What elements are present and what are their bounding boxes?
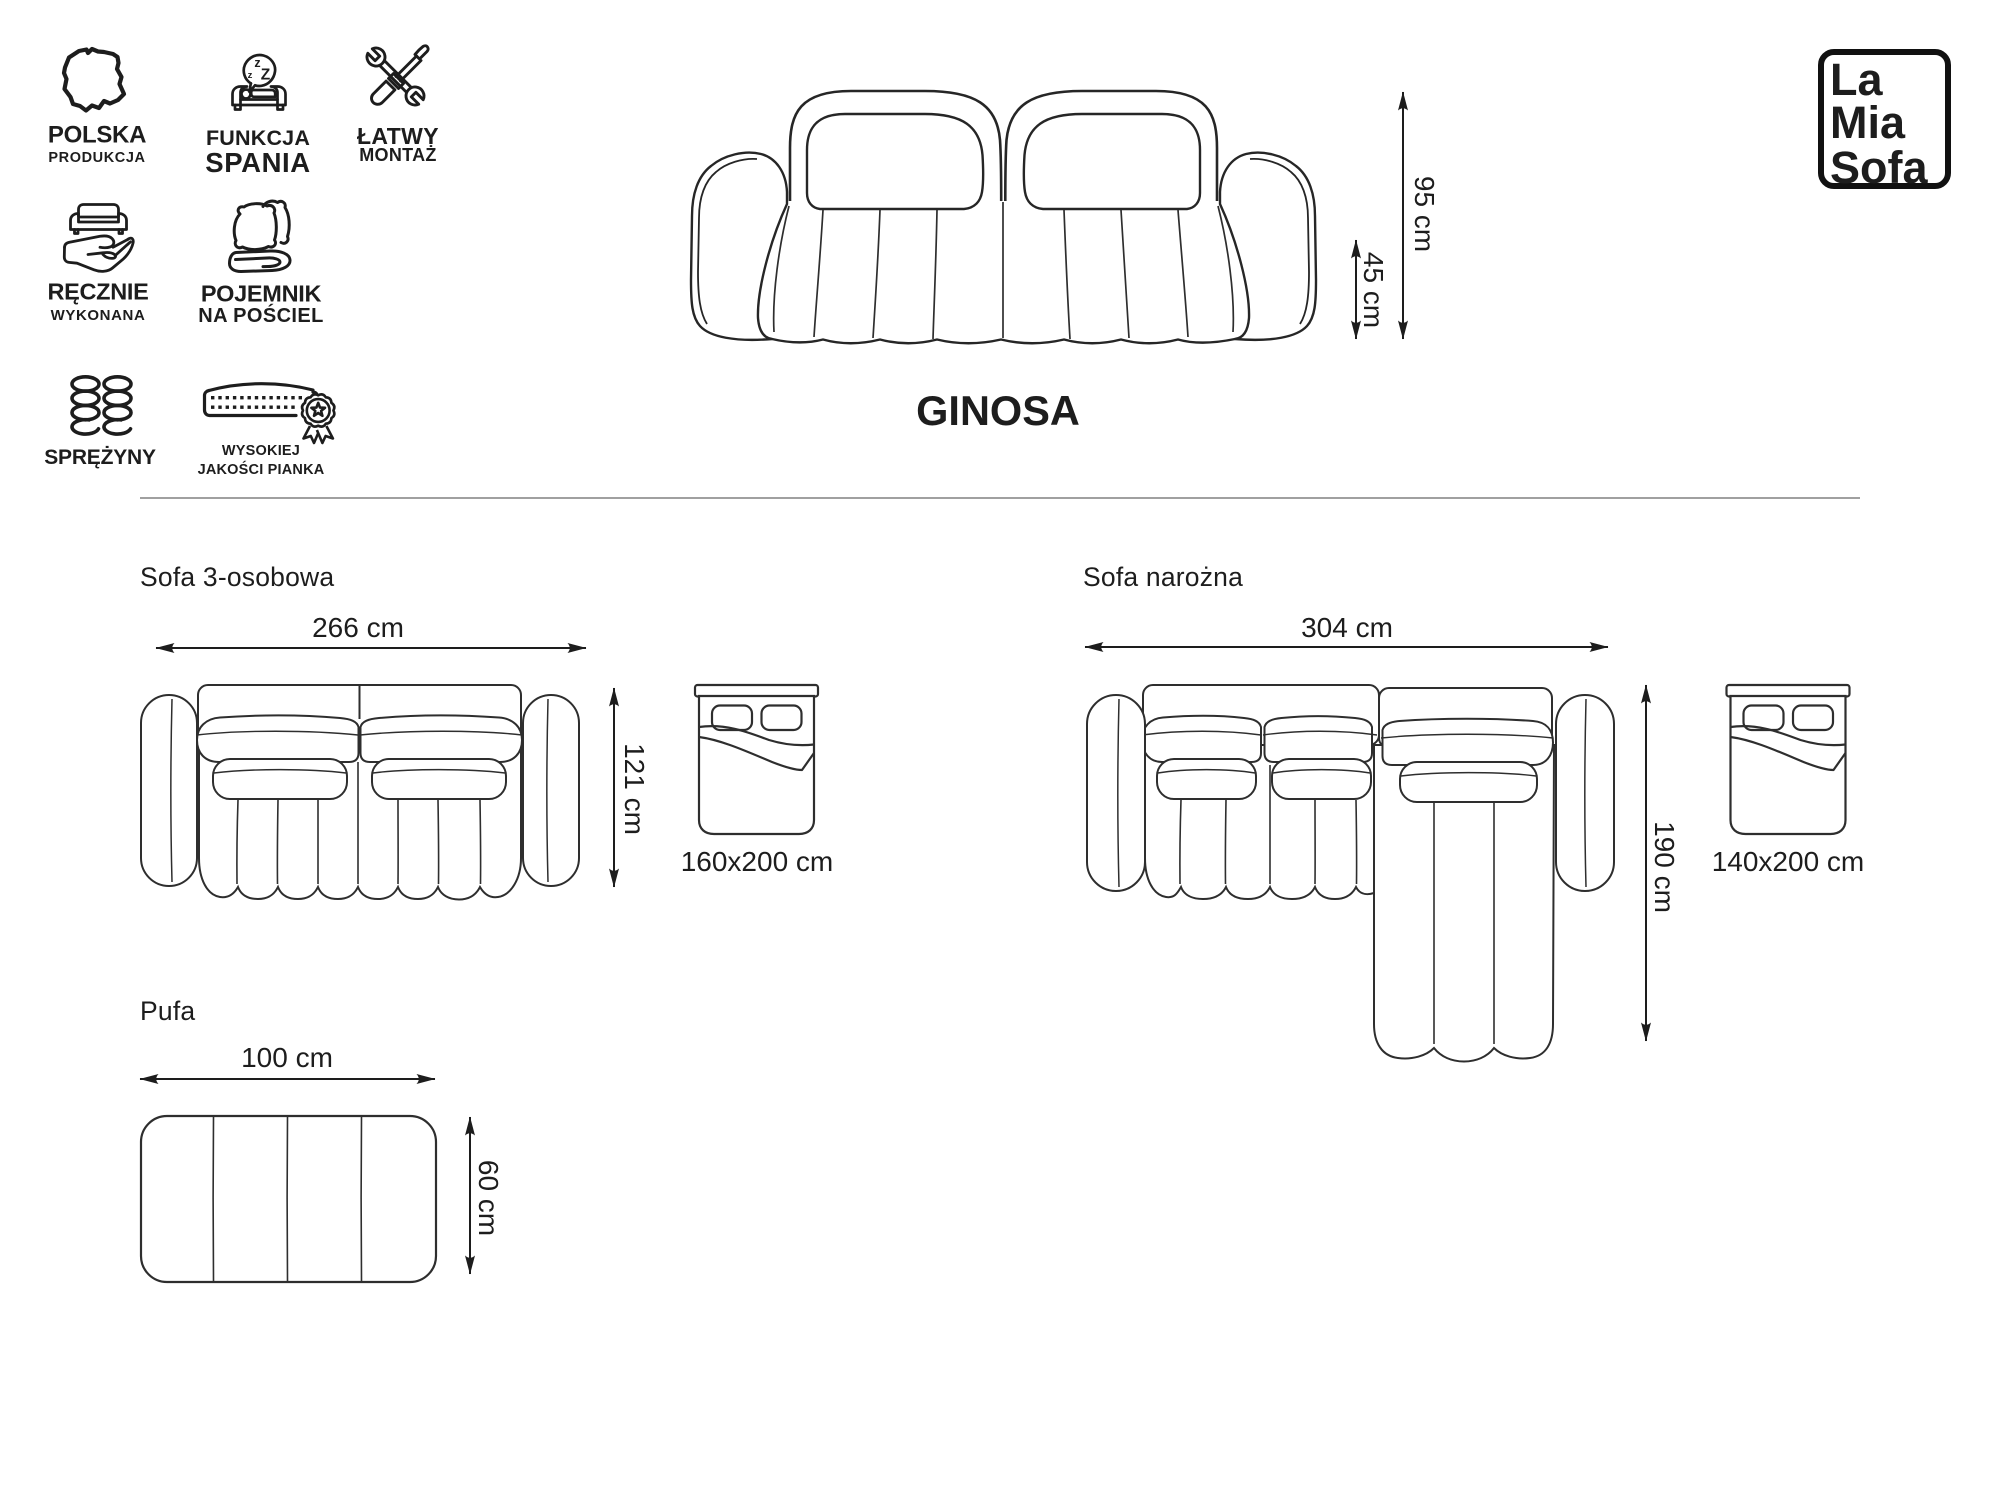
svg-text:NA POŚCIEL: NA POŚCIEL — [198, 303, 324, 327]
svg-text:100 cm: 100 cm — [241, 1042, 333, 1073]
svg-text:PRODUKCJA: PRODUKCJA — [48, 150, 145, 166]
svg-text:RĘCZNIE: RĘCZNIE — [47, 279, 148, 305]
svg-text:140x200 cm: 140x200 cm — [1712, 846, 1865, 877]
svg-text:190 cm: 190 cm — [1649, 821, 1680, 913]
svg-text:95 cm: 95 cm — [1409, 176, 1440, 252]
svg-text:121 cm: 121 cm — [619, 743, 650, 835]
svg-text:SPRĘŻYNY: SPRĘŻYNY — [44, 446, 156, 469]
svg-text:266 cm: 266 cm — [312, 612, 404, 643]
svg-text:Mia: Mia — [1830, 97, 1906, 148]
svg-text:GINOSA: GINOSA — [916, 387, 1080, 434]
svg-text:Z: Z — [261, 67, 271, 84]
svg-text:SPANIA: SPANIA — [205, 147, 310, 178]
svg-text:60 cm: 60 cm — [473, 1160, 504, 1236]
svg-text:POLSKA: POLSKA — [48, 122, 146, 149]
svg-text:z: z — [248, 70, 253, 81]
svg-text:Sofa narożna: Sofa narożna — [1083, 562, 1243, 592]
svg-text:Sofa: Sofa — [1830, 142, 1928, 193]
svg-text:POJEMNIK: POJEMNIK — [201, 281, 322, 307]
svg-text:JAKOŚCI PIANKA: JAKOŚCI PIANKA — [198, 460, 325, 478]
svg-text:MONTAŻ: MONTAŻ — [359, 145, 436, 165]
svg-text:WYKONANA: WYKONANA — [51, 307, 146, 324]
svg-text:Pufa: Pufa — [140, 996, 195, 1026]
svg-text:304 cm: 304 cm — [1301, 612, 1393, 643]
svg-text:160x200 cm: 160x200 cm — [681, 846, 834, 877]
svg-text:Sofa 3-osobowa: Sofa 3-osobowa — [140, 562, 334, 592]
svg-text:WYSOKIEJ: WYSOKIEJ — [222, 443, 300, 459]
svg-text:z: z — [254, 56, 260, 70]
svg-text:45 cm: 45 cm — [1358, 252, 1389, 328]
